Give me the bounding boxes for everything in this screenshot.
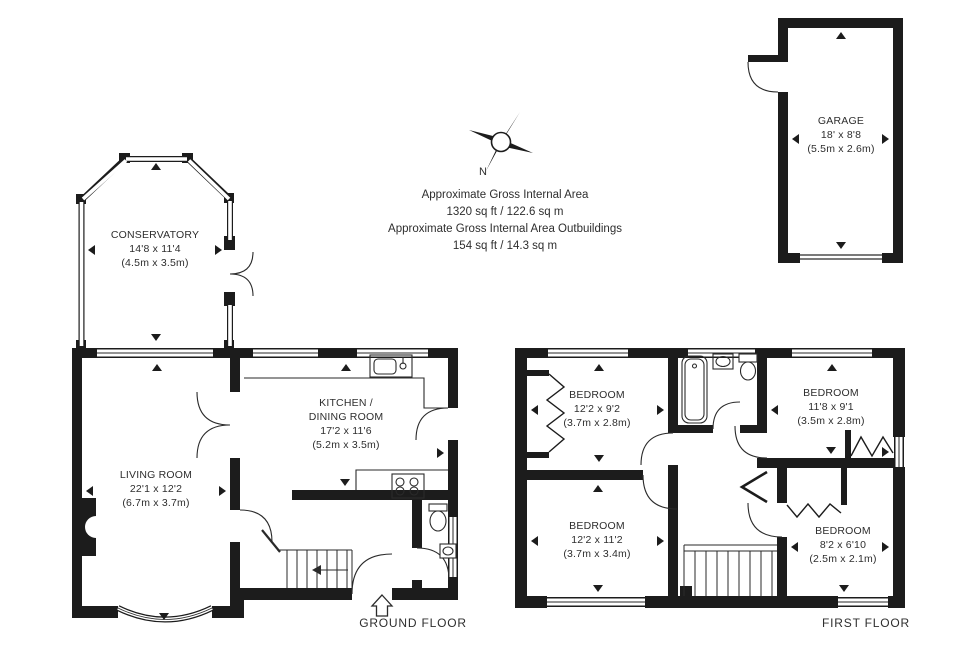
room-label-bedroom-front-right: BEDROOM 11'8 x 9'1 (3.5m x 2.8m) [797,386,864,428]
room-name: GARAGE [807,114,874,128]
room-name: CONSERVATORY [111,228,199,242]
area-line-3: Approximate Gross Internal Area Outbuild… [388,221,622,238]
room-name: LIVING ROOM [120,468,192,482]
kitchen-sink-icon [370,355,412,377]
area-line-4: 154 sq ft / 14.3 sq m [388,238,622,255]
ground-floor-stairs [262,530,352,588]
area-line-1: Approximate Gross Internal Area [388,187,622,204]
room-dim-metric: (5.5m x 2.6m) [807,142,874,156]
fireplace-icon [82,498,107,556]
room-dim-imperial: 14'8 x 11'4 [111,242,199,256]
bathtub-icon [682,356,707,423]
room-dim-imperial: 18' x 8'8 [807,128,874,142]
room-dim-metric: (3.5m x 2.8m) [797,414,864,428]
room-dim-imperial: 8'2 x 6'10 [809,538,876,552]
room-name: BEDROOM [563,388,630,402]
bathroom-toilet-icon [739,354,757,380]
room-dim-metric: (2.5m x 2.1m) [809,552,876,566]
room-label-garage: GARAGE 18' x 8'8 (5.5m x 2.6m) [807,114,874,156]
wc-toilet-icon [429,504,447,531]
room-name: BEDROOM [809,524,876,538]
room-name: BEDROOM [563,519,630,533]
room-dim-metric: (5.2m x 3.5m) [309,438,384,452]
room-name: DINING ROOM [309,410,384,424]
room-dim-metric: (3.7m x 3.4m) [563,547,630,561]
area-summary: Approximate Gross Internal Area 1320 sq … [388,187,622,255]
room-dim-imperial: 12'2 x 9'2 [563,402,630,416]
compass-north-icon [469,112,533,171]
first-floor-label: FIRST FLOOR [822,616,910,630]
entrance-arrow-icon [372,595,392,616]
room-name: KITCHEN / [309,396,384,410]
room-label-bedroom-front-left: BEDROOM 12'2 x 9'2 (3.7m x 2.8m) [563,388,630,430]
room-label-kitchen-dining-room: KITCHEN / DINING ROOM 17'2 x 11'6 (5.2m … [309,396,384,452]
first-floor-stairs [684,545,777,596]
door-swings [197,62,782,594]
room-dim-imperial: 22'1 x 12'2 [120,482,192,496]
dimension-ticks [86,32,889,620]
area-line-2: 1320 sq ft / 122.6 sq m [388,204,622,221]
room-name: BEDROOM [797,386,864,400]
room-dim-imperial: 12'2 x 11'2 [563,533,630,547]
ground-floor-label: GROUND FLOOR [359,616,467,630]
room-dim-imperial: 11'8 x 9'1 [797,400,864,414]
room-dim-imperial: 17'2 x 11'6 [309,424,384,438]
room-label-bedroom-back-right: BEDROOM 8'2 x 6'10 (2.5m x 2.1m) [809,524,876,566]
room-label-living-room: LIVING ROOM 22'1 x 12'2 (6.7m x 3.7m) [120,468,192,510]
floorplan-page: N Approximate Gross Internal Area 1320 s… [0,0,980,653]
room-label-bedroom-back-left: BEDROOM 12'2 x 11'2 (3.7m x 3.4m) [563,519,630,561]
walls [72,18,905,618]
wc-basin-icon [440,544,456,558]
garage-door [800,255,882,259]
room-label-conservatory: CONSERVATORY 14'8 x 11'4 (4.5m x 3.5m) [111,228,199,270]
room-dim-metric: (4.5m x 3.5m) [111,256,199,270]
room-dim-metric: (3.7m x 2.8m) [563,416,630,430]
room-dim-metric: (6.7m x 3.7m) [120,496,192,510]
compass-north-label: N [479,166,487,178]
